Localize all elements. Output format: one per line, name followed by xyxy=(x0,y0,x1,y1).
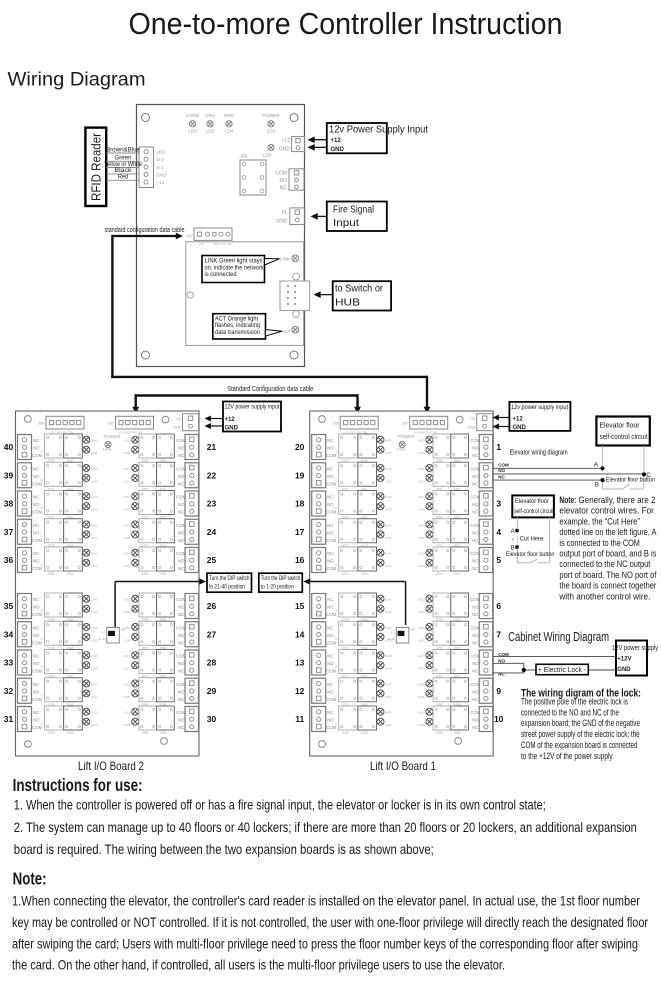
svg-text:self-control circuit: self-control circuit xyxy=(600,434,648,441)
svg-text:1.When connecting the elevator: 1.When connecting the elevator, the cont… xyxy=(12,893,640,909)
svg-text:L026: L026 xyxy=(124,638,131,642)
svg-text:COM: COM xyxy=(32,640,42,645)
svg-text:28: 28 xyxy=(207,658,217,668)
svg-text:+12V: +12V xyxy=(617,657,631,663)
svg-text:L018: L018 xyxy=(418,682,425,686)
svg-text:Fire Signal: Fire Signal xyxy=(333,205,374,216)
svg-text:NO: NO xyxy=(472,661,479,666)
svg-text:L030: L030 xyxy=(385,610,392,614)
svg-text:18: 18 xyxy=(334,506,338,510)
svg-text:23: 23 xyxy=(174,506,178,510)
svg-text:L022: L022 xyxy=(418,508,425,512)
svg-text:L019: L019 xyxy=(418,711,425,715)
svg-text:L010: L010 xyxy=(124,439,131,443)
svg-text:31: 31 xyxy=(4,714,14,724)
svg-text:the board is connect together: the board is connect together xyxy=(559,581,656,592)
svg-text:14: 14 xyxy=(334,637,338,641)
svg-text:L029: L029 xyxy=(385,638,392,642)
svg-text:FL: FL xyxy=(282,210,288,216)
svg-text:NC: NC xyxy=(472,453,478,458)
svg-text:L042: L042 xyxy=(385,523,392,527)
svg-text:Instructions for use:: Instructions for use: xyxy=(13,775,143,795)
svg-text:L028: L028 xyxy=(418,695,425,699)
svg-text:L017: L017 xyxy=(418,654,425,658)
svg-text:27: 27 xyxy=(207,629,217,639)
svg-text:L027: L027 xyxy=(124,667,131,671)
svg-text:L027: L027 xyxy=(418,667,425,671)
svg-text:L026: L026 xyxy=(91,723,98,727)
svg-text:expansion board; the GND of th: expansion board; the GND of the negative xyxy=(521,718,640,729)
svg-text:LD3: LD3 xyxy=(188,129,197,134)
svg-text:B: B xyxy=(595,482,599,489)
svg-text:+12: +12 xyxy=(175,417,181,421)
svg-text:L023: L023 xyxy=(418,536,425,540)
svg-text:L031: L031 xyxy=(91,564,98,568)
svg-text:L024: L024 xyxy=(418,564,425,568)
svg-text:COM: COM xyxy=(275,171,287,177)
svg-text:NC: NC xyxy=(33,625,39,630)
svg-text:GND: GND xyxy=(173,426,181,430)
svg-text:34: 34 xyxy=(40,637,44,641)
svg-text:L036: L036 xyxy=(91,711,98,715)
svg-text:30: 30 xyxy=(207,714,217,724)
svg-text:L027: L027 xyxy=(385,695,392,699)
svg-text:35: 35 xyxy=(4,601,14,611)
svg-text:28: 28 xyxy=(174,665,178,669)
svg-text:L012: L012 xyxy=(124,495,131,499)
svg-text:ACT: ACT xyxy=(281,329,290,334)
svg-text:27: 27 xyxy=(174,637,178,641)
svg-text:L028: L028 xyxy=(124,695,131,699)
svg-text:25: 25 xyxy=(207,555,217,565)
svg-text:COM: COM xyxy=(32,725,42,730)
svg-text:NO: NO xyxy=(178,502,185,507)
svg-text:dotted line on the left figure: dotted line on the left figure, A xyxy=(559,527,657,538)
svg-text:POWER: POWER xyxy=(262,113,280,118)
svg-text:Lift I/O Board 1: Lift I/O Board 1 xyxy=(370,759,436,773)
svg-text:32: 32 xyxy=(40,693,44,697)
svg-text:Elevator floor: Elevator floor xyxy=(515,498,550,505)
svg-text:NC: NC xyxy=(327,625,333,630)
svg-text:Standard Configuration data ca: Standard Configuration data cable xyxy=(227,386,313,393)
svg-text:LD2: LD2 xyxy=(206,129,215,134)
svg-text:J039: J039 xyxy=(342,731,349,735)
svg-text:L015: L015 xyxy=(124,598,131,602)
svg-text:2. The system can manage up to: 2. The system can manage up to 40 floors… xyxy=(14,819,637,835)
svg-text:24: 24 xyxy=(174,534,178,538)
svg-text:to the +12V of the power suppl: to the +12V of the power supply. xyxy=(521,751,614,762)
svg-text:L043: L043 xyxy=(91,495,98,499)
svg-text:A: A xyxy=(594,462,599,469)
svg-text:21: 21 xyxy=(207,442,217,452)
svg-text:NO: NO xyxy=(472,502,479,507)
svg-text:output port of board, and B is: output port of board, and B is xyxy=(559,549,656,560)
svg-text:COM: COM xyxy=(326,697,336,702)
svg-text:39: 39 xyxy=(40,478,44,482)
svg-text:Input: Input xyxy=(333,218,359,229)
svg-text:J064: J064 xyxy=(160,572,167,576)
svg-text:L021: L021 xyxy=(124,479,131,483)
svg-text:NO: NO xyxy=(178,559,185,564)
svg-text:NC: NC xyxy=(178,612,184,617)
svg-text:36: 36 xyxy=(4,555,14,565)
svg-text:COM of the expansion board is: COM of the expansion board is connected xyxy=(521,740,638,751)
svg-text:30: 30 xyxy=(174,722,178,726)
svg-text:POWER: POWER xyxy=(398,434,416,439)
svg-text:+ Electric Lock -: + Electric Lock - xyxy=(538,667,587,674)
svg-text:COM: COM xyxy=(498,462,509,467)
svg-text:L034: L034 xyxy=(385,479,392,483)
svg-text:J039: J039 xyxy=(48,731,55,735)
svg-text:NC: NC xyxy=(33,551,39,556)
svg-text:4: 4 xyxy=(496,527,501,537)
svg-text:L011: L011 xyxy=(124,467,131,471)
svg-text:38: 38 xyxy=(4,499,14,509)
svg-text:NO: NO xyxy=(280,178,288,184)
svg-text:33: 33 xyxy=(40,665,44,669)
svg-text:is connected to the COM: is connected to the COM xyxy=(559,538,640,549)
svg-text:L013: L013 xyxy=(124,523,131,527)
svg-text:L033: L033 xyxy=(385,508,392,512)
svg-text:16: 16 xyxy=(334,563,338,567)
svg-text:NC: NC xyxy=(178,453,184,458)
svg-text:to Switch or: to Switch or xyxy=(335,284,384,295)
svg-text:with another control wire.: with another control wire. xyxy=(559,591,651,602)
svg-text:D 1: D 1 xyxy=(157,165,165,170)
svg-text:+12: +12 xyxy=(157,180,165,185)
svg-text:NO: NO xyxy=(178,446,185,451)
svg-text:L010: L010 xyxy=(418,439,425,443)
svg-text:GND: GND xyxy=(276,219,288,225)
svg-text:COM: COM xyxy=(326,640,336,645)
svg-text:L012: L012 xyxy=(418,495,425,499)
svg-text:GND: GND xyxy=(157,172,168,177)
svg-text:LD1: LD1 xyxy=(267,129,276,134)
svg-text:COM: COM xyxy=(326,612,336,617)
svg-text:NC: NC xyxy=(280,186,288,192)
svg-text:NO: NO xyxy=(472,530,479,535)
svg-text:GND: GND xyxy=(331,147,345,153)
svg-text:key may be controlled or NOT c: key may be controlled or NOT controlled.… xyxy=(12,914,648,930)
svg-text:NC: NC xyxy=(472,538,478,543)
svg-text:L039: L039 xyxy=(385,626,392,630)
svg-text:POWER: POWER xyxy=(104,434,122,439)
svg-text:L045: L045 xyxy=(385,439,392,443)
svg-text:Turn the DIP switch: Turn the DIP switch xyxy=(261,575,301,582)
svg-text:21-40: 21-40 xyxy=(98,637,106,641)
svg-text:to 21-40 position: to 21-40 position xyxy=(209,583,245,590)
svg-text:GND: GND xyxy=(225,426,239,432)
svg-text:J12: J12 xyxy=(186,233,193,238)
svg-text:NO: NO xyxy=(178,718,185,723)
svg-text:COM: COM xyxy=(32,566,42,571)
svg-text:A: A xyxy=(511,529,515,535)
svg-text:self-control circuit: self-control circuit xyxy=(514,508,554,515)
svg-text:Elevator floor button: Elevator floor button xyxy=(606,476,655,483)
svg-text:31: 31 xyxy=(40,722,44,726)
svg-text:LD5: LD5 xyxy=(263,153,272,158)
svg-text:NO: NO xyxy=(178,633,185,638)
svg-text:24: 24 xyxy=(207,527,217,537)
svg-text:33: 33 xyxy=(4,658,14,668)
svg-text:L341: L341 xyxy=(397,447,407,452)
svg-text:16: 16 xyxy=(295,555,305,565)
svg-text:One-to-more Controller Instruc: One-to-more Controller Instruction xyxy=(129,6,563,41)
svg-text:+12: +12 xyxy=(199,242,204,246)
svg-text:NC: NC xyxy=(498,475,505,480)
svg-text:NC: NC xyxy=(178,697,184,702)
svg-text:elevator control wires. For: elevator control wires. For xyxy=(559,506,654,517)
svg-text:COM: COM xyxy=(32,481,42,486)
svg-text:J044: J044 xyxy=(67,572,74,576)
svg-text:J069: J069 xyxy=(160,731,167,735)
svg-text:12: 12 xyxy=(295,686,305,696)
svg-text:1: 1 xyxy=(496,442,501,452)
svg-text:NC: NC xyxy=(178,640,184,645)
svg-text:36: 36 xyxy=(40,563,44,567)
svg-text:14: 14 xyxy=(295,629,305,639)
svg-text:L041: L041 xyxy=(103,447,113,452)
svg-text:29: 29 xyxy=(174,693,178,697)
svg-text:L015: L015 xyxy=(418,598,425,602)
svg-text:NC: NC xyxy=(33,523,39,528)
svg-text:19: 19 xyxy=(334,478,338,482)
svg-text:NC: NC xyxy=(327,438,333,443)
svg-text:L032: L032 xyxy=(385,536,392,540)
svg-text:23: 23 xyxy=(207,499,217,509)
svg-text:COM: COM xyxy=(326,538,336,543)
svg-text:data transmission: data transmission xyxy=(215,329,260,336)
svg-text:L038: L038 xyxy=(91,654,98,658)
svg-text:13: 13 xyxy=(295,658,305,668)
svg-text:40: 40 xyxy=(40,450,44,454)
svg-text:17: 17 xyxy=(295,527,305,537)
svg-text:L037: L037 xyxy=(91,682,98,686)
svg-text:J36: J36 xyxy=(332,421,339,426)
svg-text:J059: J059 xyxy=(142,731,149,735)
svg-text:NC: NC xyxy=(327,551,333,556)
svg-text:19: 19 xyxy=(295,470,305,480)
svg-text:L013: L013 xyxy=(418,523,425,527)
svg-text:J069: J069 xyxy=(454,731,461,735)
svg-text:Generally, there are 2: Generally, there are 2 xyxy=(579,495,656,506)
svg-text:10: 10 xyxy=(468,722,472,726)
svg-text:10: 10 xyxy=(494,714,504,724)
svg-text:NC: NC xyxy=(33,466,39,471)
svg-text:12v power supply input: 12v power supply input xyxy=(511,404,568,411)
svg-text:Turn the DIP switch: Turn the DIP switch xyxy=(209,575,250,582)
svg-text:NC: NC xyxy=(178,481,184,486)
svg-text:COM: COM xyxy=(326,566,336,571)
svg-text:GND: GND xyxy=(279,147,291,153)
svg-text:34: 34 xyxy=(4,629,14,639)
svg-text:NC: NC xyxy=(33,710,39,715)
svg-text:ERR: ERR xyxy=(224,113,234,118)
svg-text:to 1-20 position: to 1-20 position xyxy=(261,583,294,590)
svg-text:NC: NC xyxy=(33,495,39,500)
svg-text:NC: NC xyxy=(472,566,478,571)
svg-text:+12: +12 xyxy=(225,417,236,423)
svg-text:L029: L029 xyxy=(124,723,131,727)
svg-text:NO: NO xyxy=(472,446,479,451)
svg-text:L027: L027 xyxy=(91,695,98,699)
svg-text:Cut Here: Cut Here xyxy=(520,535,544,542)
svg-text:Cabinet Wiring Diagram: Cabinet Wiring Diagram xyxy=(508,630,609,644)
svg-text:after swiping the card; Users: after swiping the card; Users with multi… xyxy=(12,936,638,952)
svg-text:12V power supply: 12V power supply xyxy=(612,645,658,652)
svg-text:L030: L030 xyxy=(91,610,98,614)
svg-text:NO: NO xyxy=(178,689,185,694)
svg-text:L035: L035 xyxy=(91,451,98,455)
svg-text:J054: J054 xyxy=(142,572,149,576)
svg-text:L039: L039 xyxy=(91,626,98,630)
svg-text:L020: L020 xyxy=(418,451,425,455)
svg-text:NO: NO xyxy=(178,474,185,479)
svg-text:L029: L029 xyxy=(91,638,98,642)
svg-text:the card. On the other hand, i: the card. On the other hand, if controll… xyxy=(12,957,505,973)
svg-text:NC: NC xyxy=(178,510,184,515)
svg-text:L042: L042 xyxy=(91,523,98,527)
svg-text:L023: L023 xyxy=(124,536,131,540)
svg-text:CARD: CARD xyxy=(186,113,200,118)
svg-text:COM: COM xyxy=(326,510,336,515)
svg-text:L016: L016 xyxy=(124,626,131,630)
svg-text:COM: COM xyxy=(32,697,42,702)
svg-text:NC: NC xyxy=(327,654,333,659)
svg-text:NC: NC xyxy=(327,495,333,500)
svg-text:L035: L035 xyxy=(385,451,392,455)
svg-text:22: 22 xyxy=(207,470,217,480)
svg-text:D 0: D 0 xyxy=(157,157,165,162)
svg-text:L014: L014 xyxy=(418,552,425,556)
svg-text:L028: L028 xyxy=(385,667,392,671)
svg-text:L016: L016 xyxy=(418,626,425,630)
svg-text:board is required. The wiring: board is required. The wiring between th… xyxy=(14,841,434,857)
svg-text:Elevator wiring diagram: Elevator wiring diagram xyxy=(510,450,568,457)
svg-text:+12: +12 xyxy=(282,138,291,144)
svg-text:COM: COM xyxy=(326,481,336,486)
svg-text:L021: L021 xyxy=(418,479,425,483)
svg-text:NC: NC xyxy=(472,697,478,702)
svg-text:NO: NO xyxy=(472,718,479,723)
svg-text:NC: NC xyxy=(327,466,333,471)
svg-text:15: 15 xyxy=(295,601,305,611)
svg-text:1-2: 1-2 xyxy=(391,631,395,635)
svg-text:J37: J37 xyxy=(402,421,409,426)
svg-text:29: 29 xyxy=(207,686,217,696)
svg-text:COM: COM xyxy=(326,669,336,674)
svg-text:6: 6 xyxy=(496,601,501,611)
svg-text:LD4: LD4 xyxy=(225,129,234,134)
svg-text:3: 3 xyxy=(496,499,501,509)
svg-text:NO: NO xyxy=(178,530,185,535)
svg-text:9: 9 xyxy=(496,686,501,696)
svg-text:connected to the NO and NC of: connected to the NO and NC of the xyxy=(521,707,619,718)
svg-text:11: 11 xyxy=(334,722,337,726)
svg-text:L031: L031 xyxy=(385,564,392,568)
svg-text:5: 5 xyxy=(496,555,501,565)
svg-text:L038: L038 xyxy=(385,654,392,658)
svg-text:L029: L029 xyxy=(418,723,425,727)
svg-text:L026: L026 xyxy=(385,723,392,727)
svg-text:22: 22 xyxy=(174,478,178,482)
svg-text:J049: J049 xyxy=(361,731,368,735)
svg-text:J36: J36 xyxy=(38,421,45,426)
svg-text:HUB: HUB xyxy=(335,297,360,308)
svg-text:port of board. The NO port of: port of board. The NO port of xyxy=(559,570,656,581)
svg-text:J064: J064 xyxy=(454,572,461,576)
svg-text:NC: NC xyxy=(178,566,184,571)
svg-text:32: 32 xyxy=(4,686,14,696)
svg-text:L045: L045 xyxy=(91,439,98,443)
svg-text:J37: J37 xyxy=(108,421,115,426)
svg-text:J034: J034 xyxy=(48,572,55,576)
svg-text:20: 20 xyxy=(334,450,338,454)
svg-text:NC: NC xyxy=(472,640,478,645)
svg-text:NC: NC xyxy=(33,682,39,687)
svg-text:CPU: CPU xyxy=(205,113,215,118)
svg-text:NC: NC xyxy=(178,725,184,730)
svg-text:L026: L026 xyxy=(418,638,425,642)
svg-text:COM: COM xyxy=(326,453,336,458)
svg-text:NO: NO xyxy=(472,605,479,610)
svg-text:26: 26 xyxy=(174,609,178,613)
svg-text:1-2: 1-2 xyxy=(101,631,105,635)
svg-text:COM: COM xyxy=(32,453,42,458)
svg-text:Lift I/O Board 2: Lift I/O Board 2 xyxy=(78,759,144,773)
svg-text:NC: NC xyxy=(472,481,478,486)
svg-text:NC: NC xyxy=(327,523,333,528)
svg-text:NC: NC xyxy=(472,612,478,617)
svg-text:L036: L036 xyxy=(385,711,392,715)
svg-text:NC: NC xyxy=(33,597,39,602)
svg-text:COM: COM xyxy=(32,538,42,543)
svg-text:J059: J059 xyxy=(436,731,443,735)
svg-text:L040: L040 xyxy=(385,598,392,602)
svg-text:L041: L041 xyxy=(91,552,98,556)
svg-text:NC: NC xyxy=(472,725,478,730)
svg-text:J044: J044 xyxy=(361,572,368,576)
svg-text:NO: NO xyxy=(472,689,479,694)
svg-text:18: 18 xyxy=(295,499,305,509)
svg-text:NO: NO xyxy=(178,605,185,610)
svg-text:L018: L018 xyxy=(124,682,131,686)
svg-text:COM: COM xyxy=(326,725,336,730)
svg-text:NC: NC xyxy=(33,654,39,659)
svg-text:J049: J049 xyxy=(67,731,74,735)
svg-text:12: 12 xyxy=(334,693,338,697)
svg-text:26: 26 xyxy=(207,601,217,611)
svg-text:NC: NC xyxy=(33,438,39,443)
svg-text:L025: L025 xyxy=(124,610,131,614)
svg-text:GND: GND xyxy=(513,425,527,431)
svg-text:example, the “Cut Here”: example, the “Cut Here” xyxy=(559,516,640,527)
svg-text:37: 37 xyxy=(40,534,44,538)
svg-text:37: 37 xyxy=(4,527,14,537)
svg-text:L011: L011 xyxy=(418,467,425,471)
svg-text:J054: J054 xyxy=(436,572,443,576)
svg-text:L022: L022 xyxy=(124,508,131,512)
svg-text:L014: L014 xyxy=(124,552,131,556)
svg-text:L025: L025 xyxy=(418,610,425,614)
svg-text:COM: COM xyxy=(32,510,42,515)
svg-text:15: 15 xyxy=(334,609,338,613)
svg-text:NC: NC xyxy=(327,710,333,715)
svg-text:38: 38 xyxy=(40,506,44,510)
svg-text:17: 17 xyxy=(334,534,338,538)
svg-text:NO: NO xyxy=(178,661,185,666)
svg-text:+12: +12 xyxy=(331,138,342,144)
